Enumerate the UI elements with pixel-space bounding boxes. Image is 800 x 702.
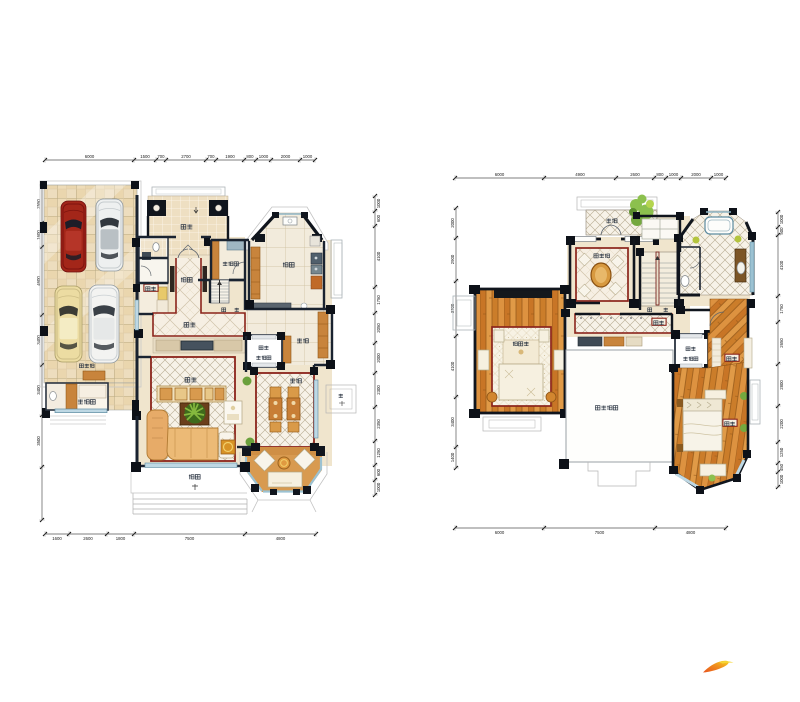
svg-text:1900: 1900 xyxy=(225,154,235,159)
svg-text:2000: 2000 xyxy=(450,218,455,228)
svg-text:700: 700 xyxy=(157,154,165,159)
svg-text:3700: 3700 xyxy=(450,303,455,313)
svg-text:2800: 2800 xyxy=(779,380,784,390)
svg-text:1000: 1000 xyxy=(376,482,381,492)
svg-text:2600: 2600 xyxy=(630,172,640,177)
svg-text:500: 500 xyxy=(779,227,784,235)
svg-text:2650: 2650 xyxy=(779,338,784,348)
svg-text:1000: 1000 xyxy=(376,198,381,208)
svg-text:2000: 2000 xyxy=(376,353,381,363)
svg-text:1000: 1000 xyxy=(259,154,269,159)
svg-text:2050: 2050 xyxy=(376,323,381,333)
svg-text:1750: 1750 xyxy=(376,295,381,305)
svg-text:2000: 2000 xyxy=(691,172,701,177)
svg-text:7500: 7500 xyxy=(595,530,605,535)
svg-text:4900: 4900 xyxy=(575,172,585,177)
svg-text:4800: 4800 xyxy=(276,536,286,541)
svg-text:6000: 6000 xyxy=(495,172,505,177)
svg-text:4800: 4800 xyxy=(686,530,696,535)
svg-text:600: 600 xyxy=(376,214,381,222)
svg-text:800: 800 xyxy=(656,172,664,177)
svg-text:1500: 1500 xyxy=(140,154,150,159)
svg-text:7500: 7500 xyxy=(185,536,195,541)
svg-text:2350: 2350 xyxy=(376,419,381,429)
svg-text:1000: 1000 xyxy=(779,214,784,224)
svg-text:1750: 1750 xyxy=(779,304,784,314)
svg-text:6000: 6000 xyxy=(85,154,95,159)
svg-text:1400: 1400 xyxy=(450,452,455,462)
svg-text:1800: 1800 xyxy=(116,536,126,541)
svg-text:2000: 2000 xyxy=(281,154,291,159)
svg-text:1600: 1600 xyxy=(52,536,62,541)
svg-text:4100: 4100 xyxy=(779,260,784,270)
svg-text:1250: 1250 xyxy=(376,448,381,458)
svg-text:4100: 4100 xyxy=(450,361,455,371)
svg-text:700: 700 xyxy=(207,154,215,159)
svg-text:2600: 2600 xyxy=(83,536,93,541)
svg-text:1000: 1000 xyxy=(714,172,724,177)
svg-text:1000: 1000 xyxy=(779,474,784,484)
svg-text:1000: 1000 xyxy=(669,172,679,177)
svg-text:6000: 6000 xyxy=(495,530,505,535)
svg-text:2300: 2300 xyxy=(376,385,381,395)
svg-text:2200: 2200 xyxy=(779,419,784,429)
svg-text:4100: 4100 xyxy=(376,251,381,261)
svg-text:3400: 3400 xyxy=(450,417,455,427)
svg-text:1250: 1250 xyxy=(779,447,784,457)
svg-text:3500: 3500 xyxy=(36,436,41,446)
svg-text:2900: 2900 xyxy=(450,254,455,264)
svg-text:2700: 2700 xyxy=(181,154,191,159)
svg-text:1000: 1000 xyxy=(303,154,313,159)
svg-text:800: 800 xyxy=(246,154,254,159)
svg-text:600: 600 xyxy=(376,468,381,476)
svg-text:450: 450 xyxy=(779,463,784,471)
